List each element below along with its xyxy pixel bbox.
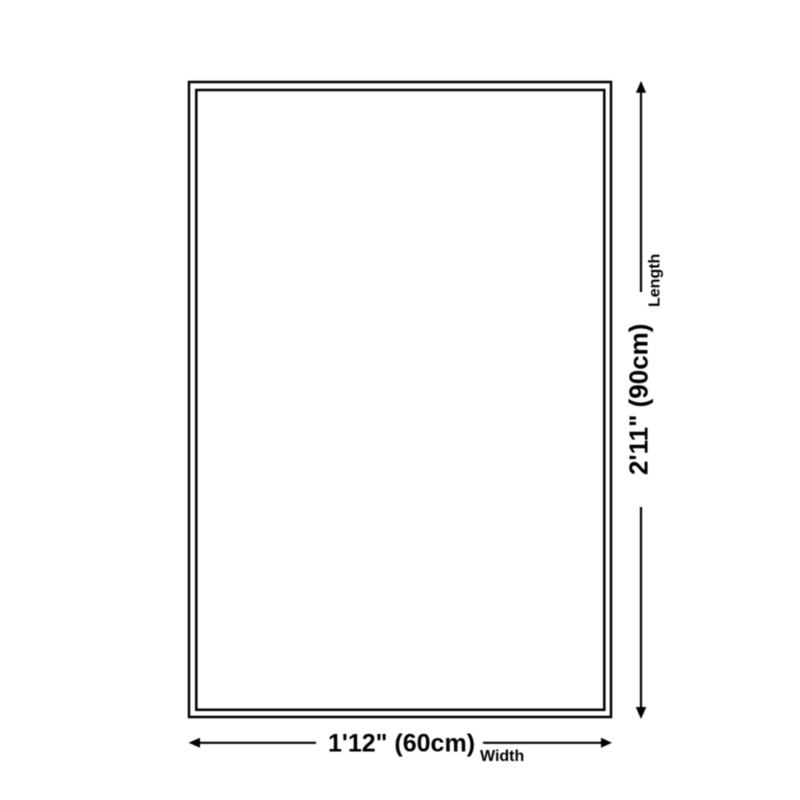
svg-text:Width: Width: [480, 748, 524, 765]
svg-text:2'11" (90cm): 2'11" (90cm): [624, 324, 654, 476]
svg-text:Length: Length: [647, 254, 664, 307]
svg-text:1'12" (60cm): 1'12" (60cm): [328, 730, 475, 758]
